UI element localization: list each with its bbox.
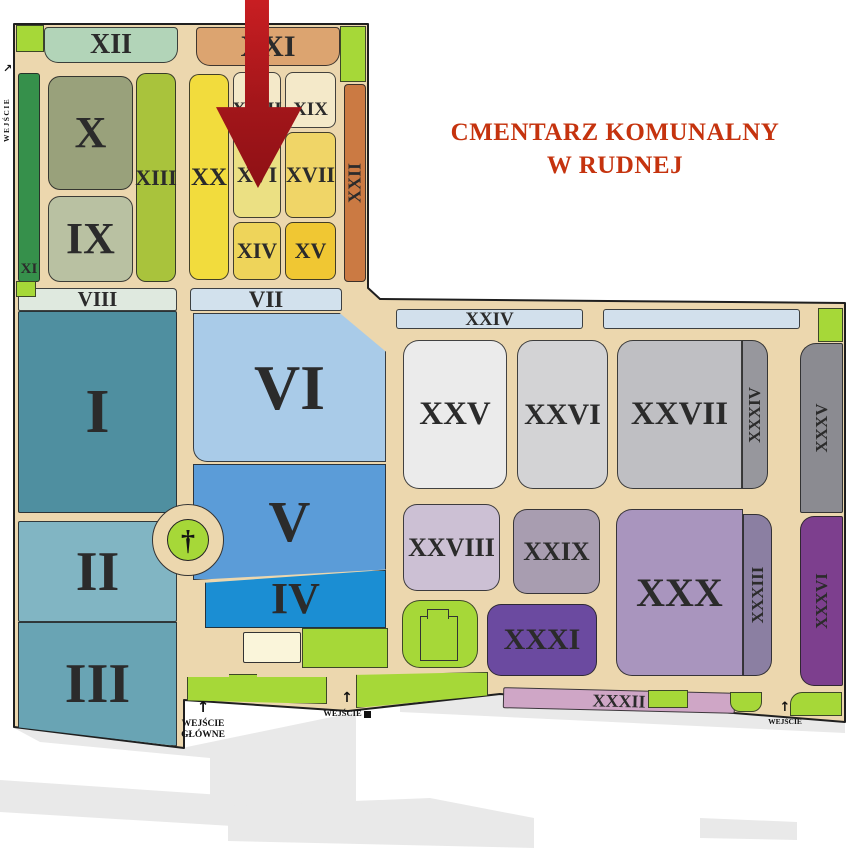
section-xxiv-label: XXIV	[465, 310, 514, 329]
main-entrance-arrow-icon: ↑	[168, 698, 238, 716]
section-xxv: XXV	[403, 340, 507, 489]
section-xxxv: XXXV	[800, 343, 843, 513]
section-viii-label: VIII	[78, 289, 118, 310]
section-xxviii-label: XXVIII	[408, 535, 495, 561]
section-xx: XX	[189, 74, 229, 280]
section-xxxiii-label: XXXIII	[748, 567, 768, 624]
section-vi: VI	[193, 313, 386, 462]
section-xxviii: XXVIII	[403, 504, 500, 591]
chapel-footprint-top	[427, 609, 449, 619]
section-xxxi: XXXI	[487, 604, 597, 676]
section-xiv-label: XIV	[237, 240, 277, 262]
section-xxix-label: XXIX	[523, 539, 589, 565]
section-xxxiv-label: XXXIV	[745, 387, 765, 443]
section-xx-label: XX	[191, 165, 227, 190]
section-xiv: XIV	[233, 222, 281, 280]
section-xiii-label: XIII	[135, 167, 177, 189]
section-xxv-label: XXV	[419, 398, 491, 431]
section-viii: VIII	[18, 288, 177, 311]
green-patch-west	[16, 281, 36, 297]
section-xii: XII	[44, 27, 178, 63]
gate-icon	[364, 711, 371, 718]
section-xxii: XXII	[344, 84, 366, 282]
section-xxxi-label: XXXI	[504, 625, 581, 655]
cross-icon: †	[181, 526, 195, 558]
section-xxxiv: XXXIV	[742, 340, 768, 489]
cemetery-map: XII XXI XI X IX XIII XX XVIII XIX XVI XV…	[0, 0, 851, 851]
map-title: CMENTARZ KOMUNALNY W RUDNEJ	[445, 116, 785, 182]
section-xiii: XIII	[136, 73, 176, 282]
west-entrance-label: WEJŚCIE	[2, 80, 13, 142]
section-xi-label: XI	[21, 262, 38, 277]
section-xxxiii: XXXIII	[743, 514, 772, 676]
outside-area-south	[228, 798, 534, 848]
section-xvii: XVII	[285, 132, 336, 218]
section-iv-label: IV	[271, 577, 320, 621]
section-xii-label: XII	[90, 31, 132, 59]
section-x-label: X	[75, 111, 107, 155]
section-xxvii: XXVII	[617, 340, 742, 489]
section-xxxv-label: XXXV	[812, 403, 832, 452]
section-xxvi: XXVI	[517, 340, 608, 489]
section-ix: IX	[48, 196, 133, 282]
south-entrance-arrow-icon: ↑	[312, 690, 382, 706]
section-xxiv: XXIV	[396, 309, 583, 329]
main-entrance-label-2: GŁÓWNE	[181, 730, 225, 740]
section-i: I	[18, 311, 177, 513]
map-title-line1: CMENTARZ KOMUNALNY	[445, 116, 785, 149]
section-xi: XI	[18, 73, 40, 282]
section-ix-label: IX	[66, 217, 115, 261]
section-vii: VII	[190, 288, 342, 311]
green-patch-northeast	[340, 26, 366, 82]
chapel-footprint	[420, 616, 458, 661]
section-xxxvi: XXXVI	[800, 516, 843, 686]
section-xxxvi-label: XXXVI	[812, 573, 832, 629]
southeast-entrance-arrow-icon: ↑	[752, 700, 818, 715]
roundabout-green-island: †	[167, 519, 209, 561]
section-vi-label: VI	[254, 356, 325, 420]
west-entrance-arrow-icon: ↗	[3, 62, 12, 75]
section-v-label: V	[269, 493, 311, 551]
section-iii: III	[18, 622, 177, 746]
green-patch-xxiv-corner	[818, 308, 843, 342]
south-entrance-label: WEJŚCIE	[323, 708, 361, 718]
southeast-entrance: ↑ WEJŚCIE	[752, 700, 818, 726]
section-xxix: XXIX	[513, 509, 600, 594]
outside-area-southeast	[700, 818, 797, 840]
section-xxvii-label: XXVII	[631, 398, 728, 431]
section-xxii-label: XXII	[345, 163, 366, 203]
section-iii-label: III	[65, 656, 130, 712]
section-xvii-label: XVII	[286, 164, 335, 186]
section-xxvi-label: XXVI	[524, 400, 601, 430]
main-entrance-label-1: WEJŚCIE	[182, 719, 225, 729]
section-xxx-label: XXX	[636, 573, 723, 613]
green-patch-se-1	[648, 690, 688, 708]
section-x: X	[48, 76, 133, 190]
green-area-mid	[302, 628, 388, 668]
section-vii-label: VII	[249, 288, 284, 311]
south-entrance: ↑ WEJŚCIE	[312, 690, 382, 718]
map-title-line2: W RUDNEJ	[445, 149, 785, 182]
building-main	[243, 632, 301, 663]
section-v: V	[193, 464, 386, 580]
southeast-entrance-label: WEJŚCIE	[768, 717, 802, 726]
section-i-label: I	[85, 381, 109, 443]
section-xv: XV	[285, 222, 336, 280]
section-xv-label: XV	[295, 240, 327, 262]
main-entrance: ↑ WEJŚCIE GŁÓWNE	[168, 698, 238, 741]
section-xxxii-label: XXXII	[592, 691, 645, 710]
section-xxx: XXX	[616, 509, 743, 676]
section-xxiv-east-strip	[603, 309, 800, 329]
section-ii-label: II	[76, 544, 120, 600]
green-patch-northwest	[16, 25, 44, 52]
